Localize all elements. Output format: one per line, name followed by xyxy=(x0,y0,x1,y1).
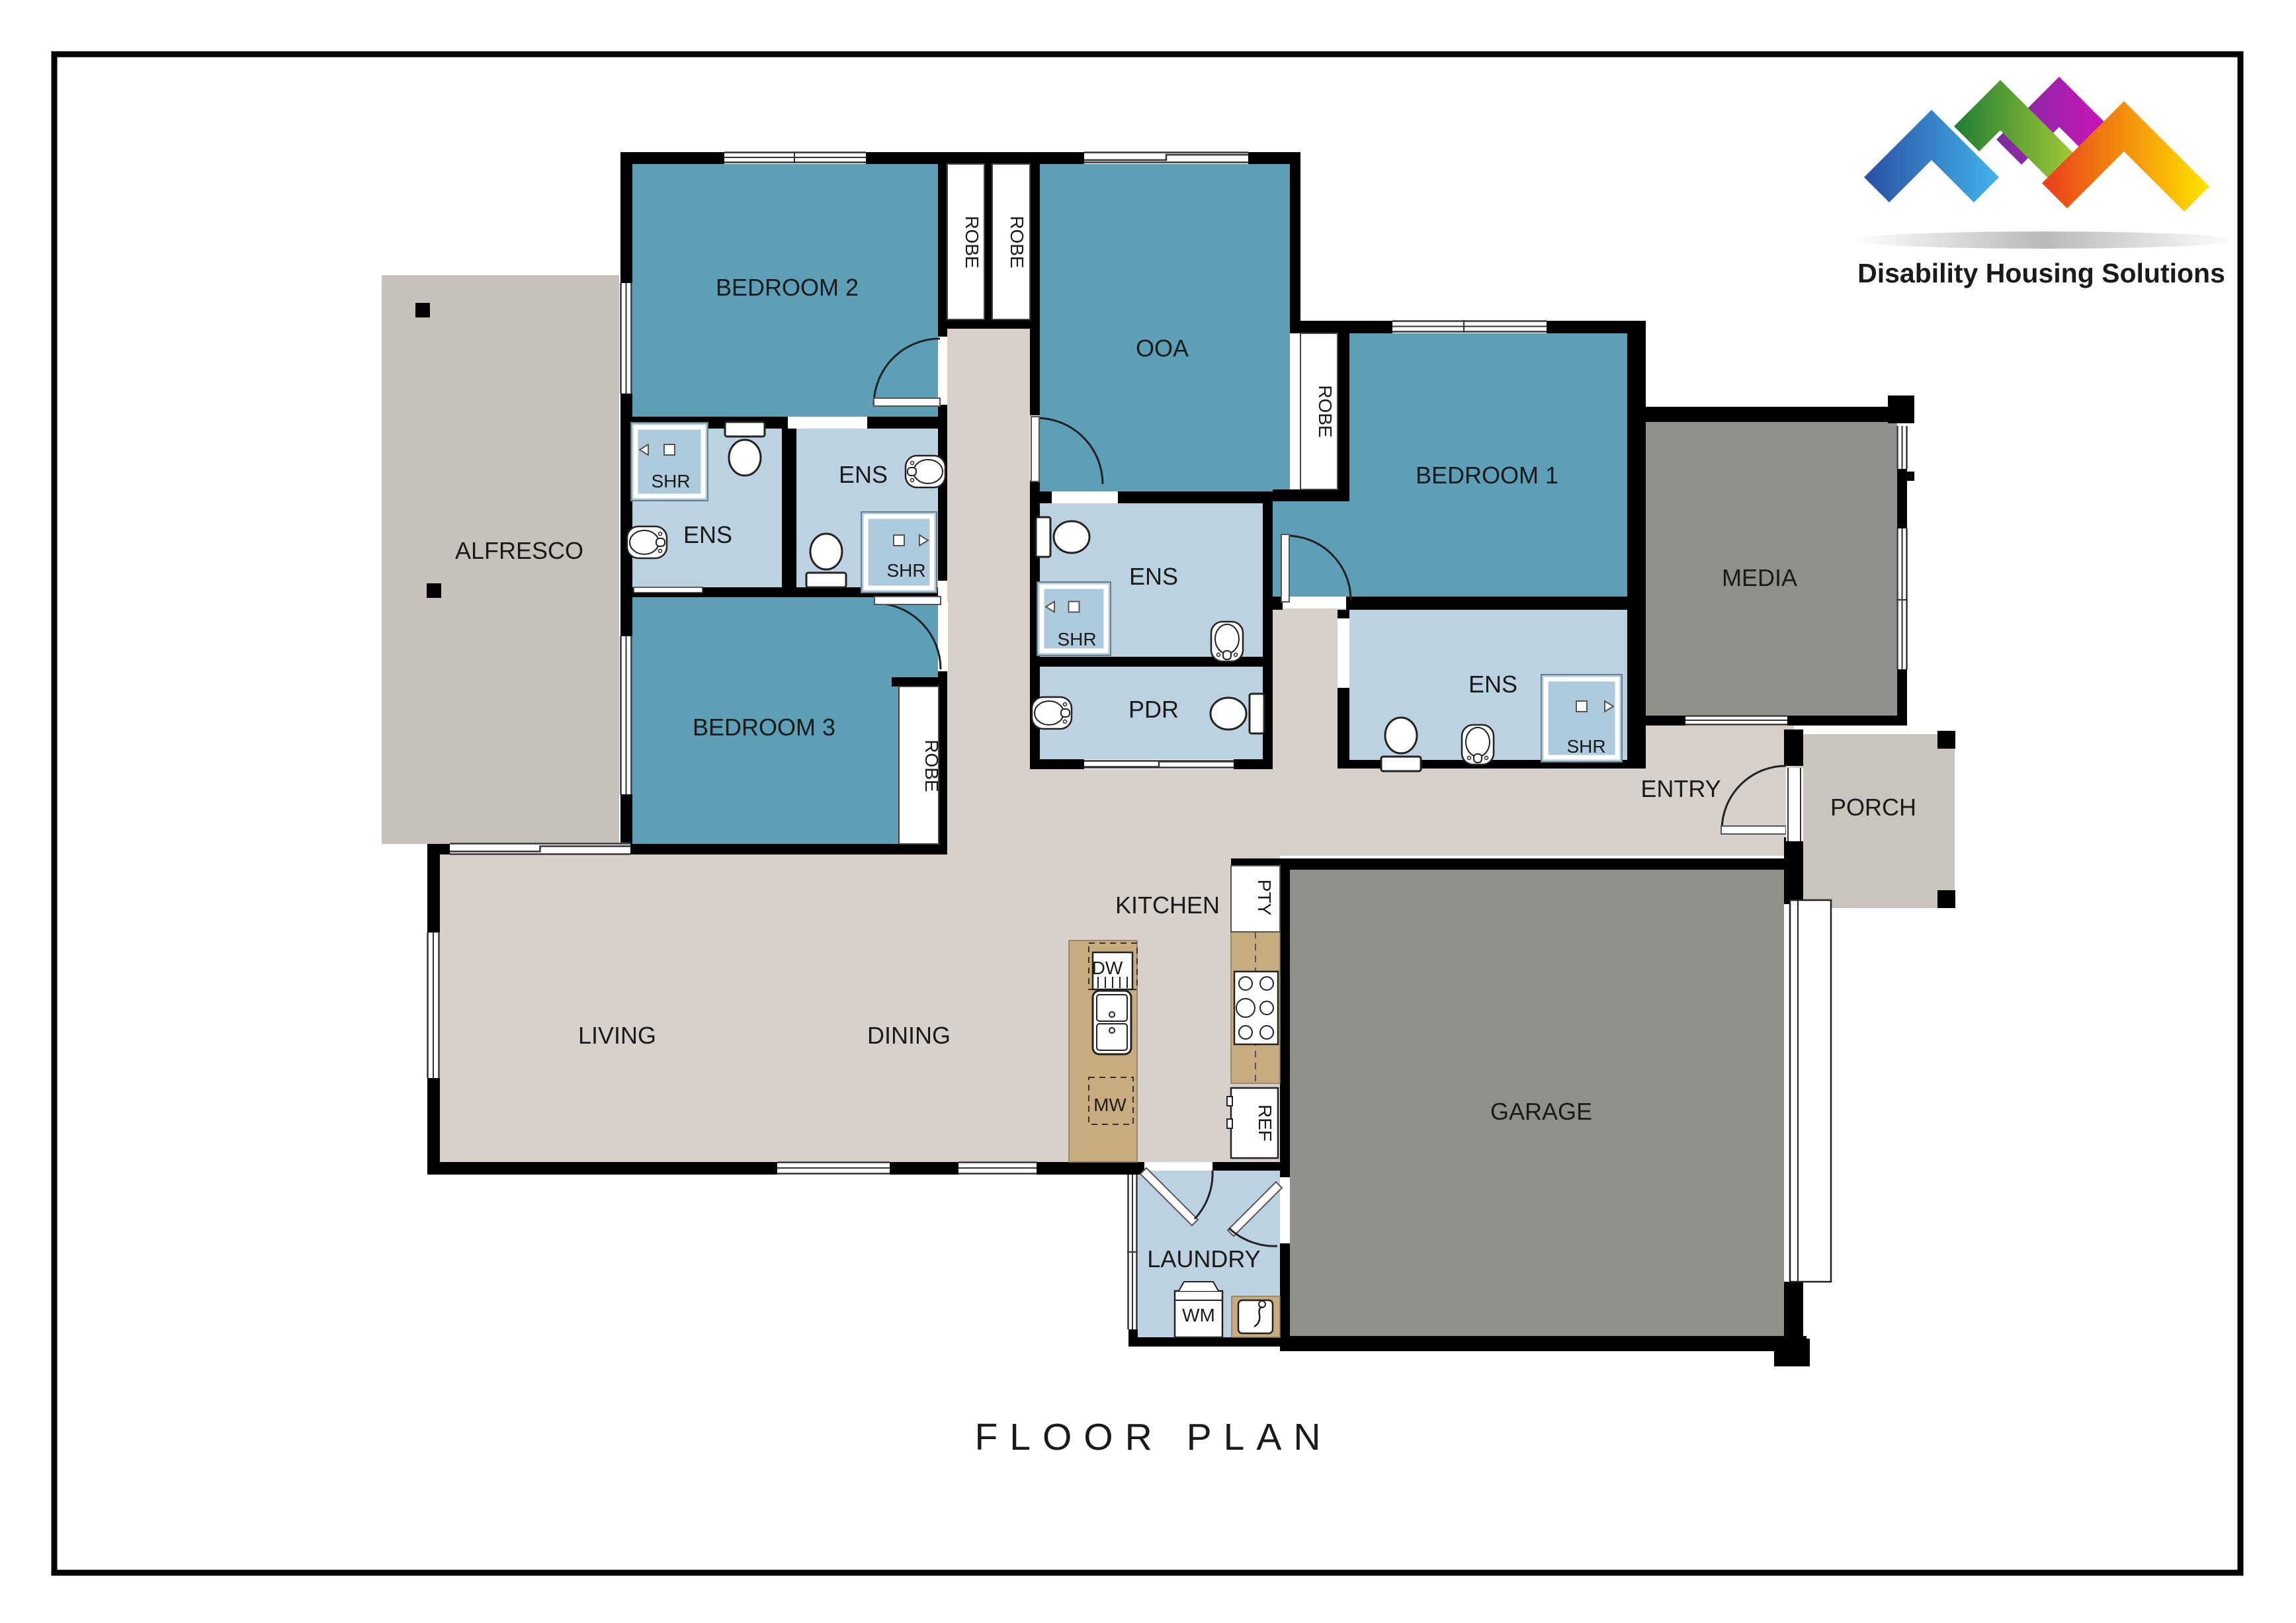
svg-text:SHR: SHR xyxy=(1566,736,1605,757)
svg-text:LIVING: LIVING xyxy=(578,1022,656,1049)
svg-text:REF: REF xyxy=(1255,1104,1275,1142)
svg-text:ENTRY: ENTRY xyxy=(1640,775,1721,802)
svg-text:ROBE: ROBE xyxy=(1007,216,1027,268)
svg-text:DW: DW xyxy=(1092,958,1123,978)
svg-text:FLOOR PLAN: FLOOR PLAN xyxy=(974,1416,1332,1458)
svg-text:LAUNDRY: LAUNDRY xyxy=(1147,1245,1260,1272)
svg-text:ALFRESCO: ALFRESCO xyxy=(455,537,583,564)
svg-text:OOA: OOA xyxy=(1136,335,1189,362)
svg-text:BEDROOM 1: BEDROOM 1 xyxy=(1416,462,1558,489)
svg-text:BEDROOM 3: BEDROOM 3 xyxy=(693,714,835,741)
svg-text:ENS: ENS xyxy=(683,521,732,548)
svg-text:ENS: ENS xyxy=(839,461,888,488)
svg-text:SHR: SHR xyxy=(1057,629,1096,649)
svg-text:DINING: DINING xyxy=(867,1022,951,1049)
svg-text:GARAGE: GARAGE xyxy=(1490,1098,1592,1125)
svg-text:PORCH: PORCH xyxy=(1830,794,1916,821)
svg-text:KITCHEN: KITCHEN xyxy=(1115,892,1220,919)
svg-text:Disability Housing Solutions: Disability Housing Solutions xyxy=(1857,258,2225,288)
svg-text:ROBE: ROBE xyxy=(1315,385,1336,437)
svg-text:ROBE: ROBE xyxy=(962,216,982,268)
svg-text:ENS: ENS xyxy=(1129,563,1178,590)
svg-text:WM: WM xyxy=(1182,1305,1215,1325)
svg-text:MW: MW xyxy=(1093,1095,1127,1115)
svg-text:BEDROOM 2: BEDROOM 2 xyxy=(716,274,859,301)
svg-text:MEDIA: MEDIA xyxy=(1722,564,1797,591)
svg-text:PDR: PDR xyxy=(1128,696,1179,723)
svg-text:PTY: PTY xyxy=(1254,880,1275,916)
svg-text:ENS: ENS xyxy=(1468,671,1517,698)
svg-text:ROBE: ROBE xyxy=(921,739,942,792)
svg-text:SHR: SHR xyxy=(651,471,690,491)
svg-text:SHR: SHR xyxy=(886,560,925,581)
